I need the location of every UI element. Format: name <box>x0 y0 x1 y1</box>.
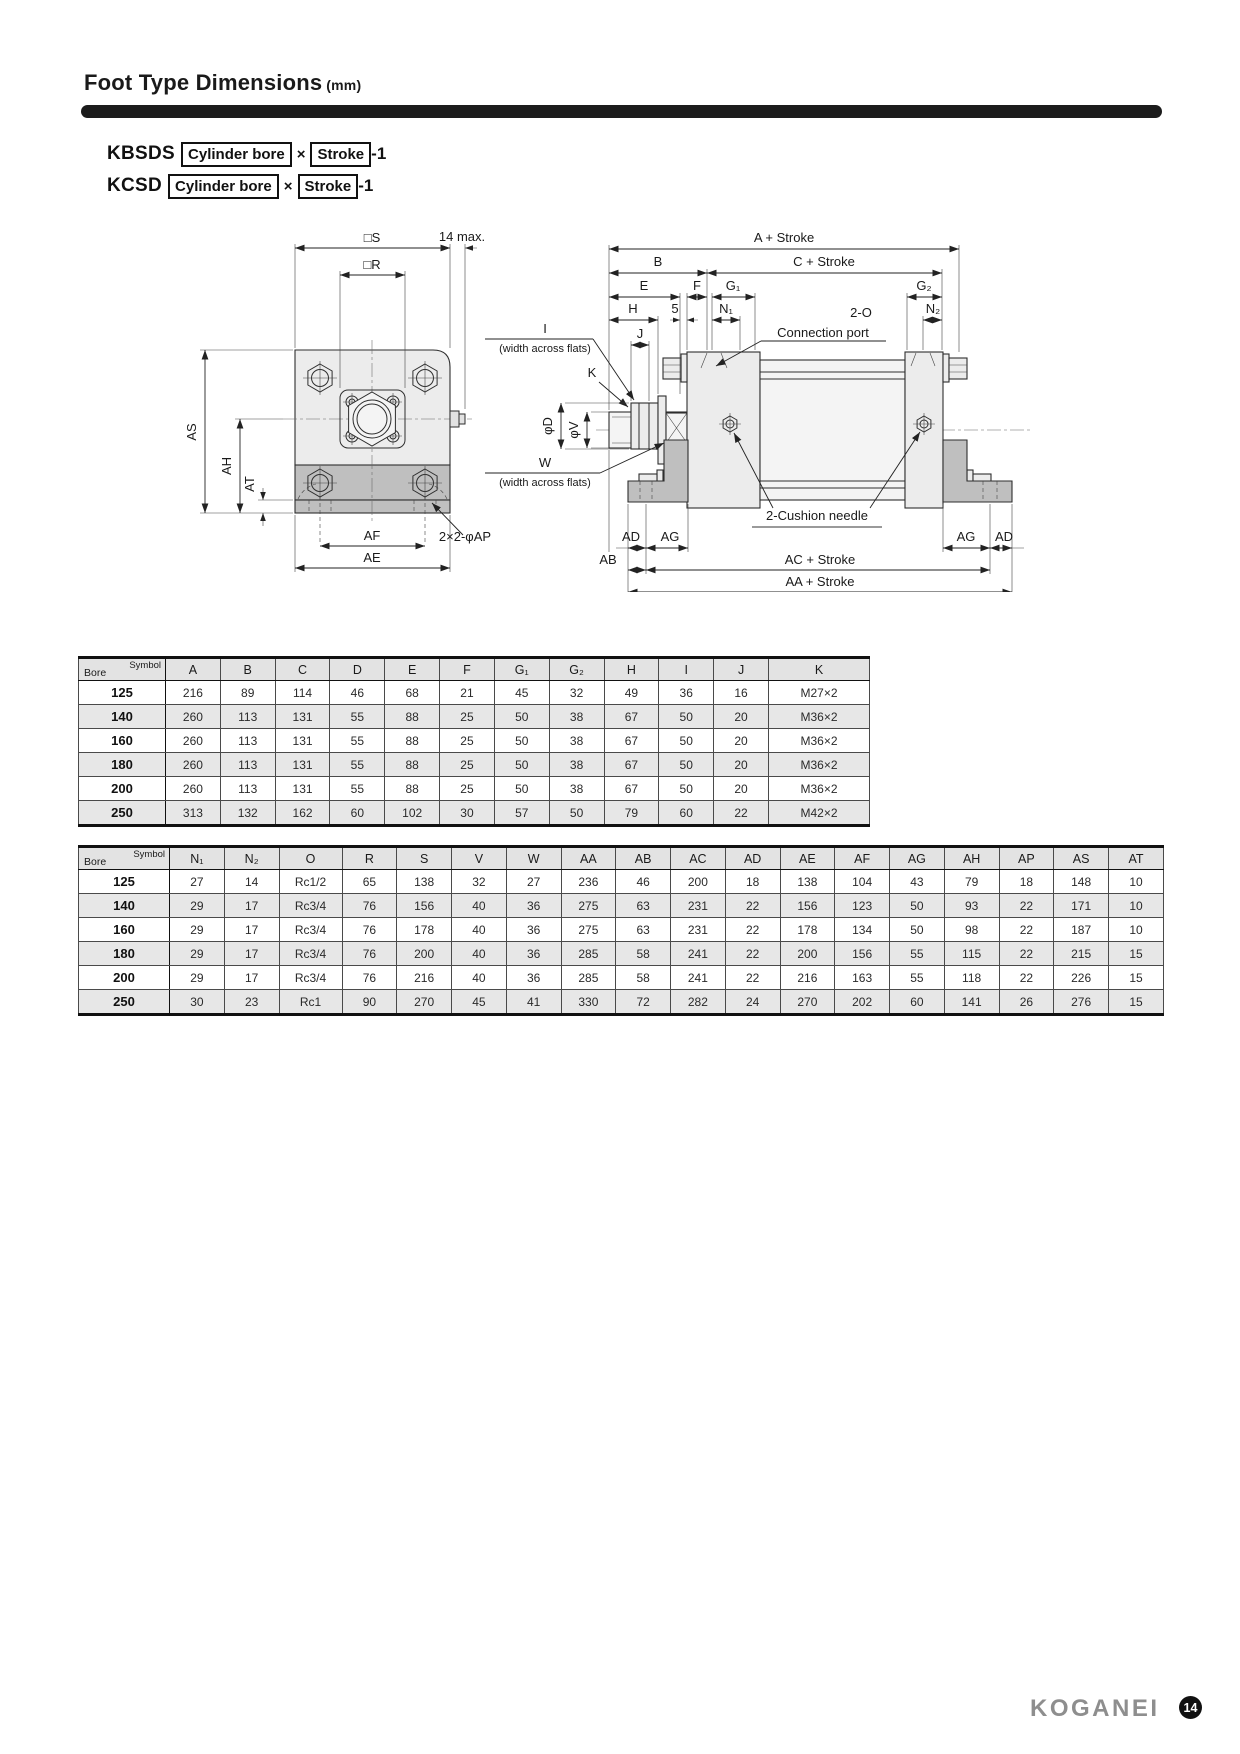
value-cell: 22 <box>999 894 1054 918</box>
side-view: A + Stroke B C + Stroke E F G₁ G₂ H 5 N₁… <box>485 230 1032 592</box>
value-cell: 89 <box>220 681 275 705</box>
column-header: G₂ <box>549 658 604 681</box>
value-cell: 10 <box>1109 894 1164 918</box>
value-cell: 79 <box>944 870 999 894</box>
value-cell: 50 <box>494 705 549 729</box>
label-connection-port: Connection port <box>777 325 869 340</box>
column-header: W <box>506 847 561 870</box>
dim-label-n1: N₁ <box>719 301 733 316</box>
value-cell: 260 <box>166 777 221 801</box>
dim-label-waf1: (width across flats) <box>499 343 591 355</box>
value-cell: 231 <box>671 894 726 918</box>
value-cell: 40 <box>452 942 507 966</box>
value-cell: 285 <box>561 942 616 966</box>
value-cell: 57 <box>494 801 549 826</box>
column-header: F <box>440 658 495 681</box>
model-code: KBSDS <box>107 143 175 165</box>
bore-cell: 160 <box>79 918 170 942</box>
bore-cell: 125 <box>79 681 166 705</box>
catalog-page: Foot Type Dimensions(mm) KBSDS Cylinder … <box>0 0 1240 1754</box>
value-cell: 132 <box>220 801 275 826</box>
column-header: AF <box>835 847 890 870</box>
value-cell: 270 <box>397 990 452 1015</box>
value-cell: 40 <box>452 918 507 942</box>
value-cell: 113 <box>220 753 275 777</box>
dim-label-ag-right: AG <box>957 529 976 544</box>
bore-cell: 250 <box>79 990 170 1015</box>
stroke-box: Stroke <box>298 174 359 199</box>
value-cell: 76 <box>342 966 397 990</box>
value-cell: 55 <box>890 942 945 966</box>
value-cell: 60 <box>659 801 714 826</box>
corner-cell: Symbol Bore <box>79 658 166 681</box>
cylinder-bore-box: Cylinder bore <box>181 142 292 167</box>
bore-cell: 180 <box>79 942 170 966</box>
model-suffix: -1 <box>358 176 373 196</box>
value-cell: 171 <box>1054 894 1109 918</box>
value-cell: 23 <box>224 990 279 1015</box>
value-cell: 113 <box>220 777 275 801</box>
value-cell: 24 <box>725 990 780 1015</box>
dim-label-g2: G₂ <box>916 278 931 293</box>
dim-label-w: W <box>539 455 552 470</box>
value-cell: 17 <box>224 918 279 942</box>
value-cell: 32 <box>452 870 507 894</box>
value-cell: 15 <box>1109 942 1164 966</box>
value-cell: 275 <box>561 894 616 918</box>
column-header: AG <box>890 847 945 870</box>
value-cell: 76 <box>342 918 397 942</box>
value-cell: 104 <box>835 870 890 894</box>
value-cell: 36 <box>506 894 561 918</box>
value-cell: 45 <box>494 681 549 705</box>
value-cell: 241 <box>671 966 726 990</box>
value-cell: 49 <box>604 681 659 705</box>
value-cell: 275 <box>561 918 616 942</box>
value-cell: 29 <box>170 894 225 918</box>
bore-cell: 160 <box>79 729 166 753</box>
table-row: 1602917Rc3/47617840362756323122178134509… <box>79 918 1164 942</box>
column-header: I <box>659 658 714 681</box>
model-number-block: KBSDS Cylinder bore × Stroke -1 KCSD Cyl… <box>107 138 386 202</box>
value-cell: 282 <box>671 990 726 1015</box>
value-cell: Rc3/4 <box>279 918 342 942</box>
value-cell: 18 <box>999 870 1054 894</box>
value-cell: 25 <box>440 753 495 777</box>
value-cell: 55 <box>330 777 385 801</box>
column-header: AH <box>944 847 999 870</box>
times-sign: × <box>284 178 293 195</box>
dim-label-phi-d: φD <box>540 417 555 435</box>
value-cell: 113 <box>220 705 275 729</box>
koganei-logo: KOGANEI <box>1030 1695 1160 1723</box>
table-row: 1402917Rc3/47615640362756323122156123509… <box>79 894 1164 918</box>
value-cell: 45 <box>452 990 507 1015</box>
dim-label-aa-stroke: AA + Stroke <box>785 574 854 589</box>
value-cell: 98 <box>944 918 999 942</box>
value-cell: 102 <box>385 801 440 826</box>
column-header: AC <box>671 847 726 870</box>
value-cell: 36 <box>659 681 714 705</box>
column-header: AD <box>725 847 780 870</box>
bore-cell: 125 <box>79 870 170 894</box>
header-row: Symbol Bore ABCDEFG₁G₂HIJK <box>79 658 870 681</box>
value-cell: 63 <box>616 894 671 918</box>
value-cell: 216 <box>397 966 452 990</box>
dim-label-as: AS <box>184 423 199 441</box>
page-title: Foot Type Dimensions(mm) <box>84 70 361 96</box>
dim-label-c-stroke: C + Stroke <box>793 254 855 269</box>
table-row: 1602601131315588255038675020M36×2 <box>79 729 870 753</box>
value-cell: 50 <box>494 777 549 801</box>
value-cell: 216 <box>166 681 221 705</box>
dim-label-ac-stroke: AC + Stroke <box>785 552 855 567</box>
value-cell: 313 <box>166 801 221 826</box>
value-cell: 30 <box>440 801 495 826</box>
value-cell: 67 <box>604 753 659 777</box>
value-cell: 21 <box>440 681 495 705</box>
column-header: C <box>275 658 330 681</box>
value-cell: 118 <box>944 966 999 990</box>
stroke-box: Stroke <box>310 142 371 167</box>
value-cell: 10 <box>1109 918 1164 942</box>
value-cell: 25 <box>440 777 495 801</box>
value-cell: 187 <box>1054 918 1109 942</box>
value-cell: 30 <box>170 990 225 1015</box>
value-cell: 156 <box>835 942 890 966</box>
corner-symbol-label: Symbol <box>129 660 161 671</box>
value-cell: 22 <box>714 801 769 826</box>
value-cell: 88 <box>385 753 440 777</box>
table-row: 1802601131315588255038675020M36×2 <box>79 753 870 777</box>
dim-label-f: F <box>693 278 701 293</box>
value-cell: 156 <box>780 894 835 918</box>
column-header: G₁ <box>494 658 549 681</box>
cylinder-bore-box: Cylinder bore <box>168 174 279 199</box>
value-cell: 20 <box>714 729 769 753</box>
dim-label-ab: AB <box>599 552 616 567</box>
value-cell: 67 <box>604 705 659 729</box>
value-cell: 330 <box>561 990 616 1015</box>
bore-cell: 180 <box>79 753 166 777</box>
dimension-table-2: Symbol Bore N₁N₂ORSVWAAABACADAEAFAGAHAPA… <box>78 845 1164 1016</box>
times-sign: × <box>297 146 306 163</box>
column-header: S <box>397 847 452 870</box>
value-cell: 285 <box>561 966 616 990</box>
value-cell: 178 <box>780 918 835 942</box>
value-cell: 88 <box>385 705 440 729</box>
column-header: AT <box>1109 847 1164 870</box>
value-cell: 60 <box>890 990 945 1015</box>
bore-cell: 200 <box>79 777 166 801</box>
dim-label-5: 5 <box>671 301 678 316</box>
value-cell: 215 <box>1054 942 1109 966</box>
front-view: □S □R 14 max. AS AH AT AF AE 2×2-φAP <box>184 229 491 572</box>
value-cell: 20 <box>714 777 769 801</box>
value-cell: M36×2 <box>769 777 870 801</box>
value-cell: 156 <box>397 894 452 918</box>
dim-label-ah: AH <box>219 457 234 475</box>
value-cell: 148 <box>1054 870 1109 894</box>
column-header: J <box>714 658 769 681</box>
column-header: D <box>330 658 385 681</box>
value-cell: 29 <box>170 966 225 990</box>
dim-label-i: I <box>543 321 547 336</box>
value-cell: 270 <box>780 990 835 1015</box>
corner-bore-label: Bore <box>84 667 106 679</box>
value-cell: 260 <box>166 705 221 729</box>
header-row: Symbol Bore N₁N₂ORSVWAAABACADAEAFAGAHAPA… <box>79 847 1164 870</box>
dim-label-ae: AE <box>363 550 381 565</box>
column-header: V <box>452 847 507 870</box>
value-cell: 141 <box>944 990 999 1015</box>
column-header: N₂ <box>224 847 279 870</box>
value-cell: 260 <box>166 753 221 777</box>
value-cell: 27 <box>506 870 561 894</box>
column-header: A <box>166 658 221 681</box>
value-cell: 131 <box>275 777 330 801</box>
value-cell: 90 <box>342 990 397 1015</box>
value-cell: 200 <box>397 942 452 966</box>
model-line-kbsds: KBSDS Cylinder bore × Stroke -1 <box>107 138 386 170</box>
table-row: 2002917Rc3/47621640362855824122216163551… <box>79 966 1164 990</box>
value-cell: 276 <box>1054 990 1109 1015</box>
value-cell: 26 <box>999 990 1054 1015</box>
value-cell: 138 <box>780 870 835 894</box>
value-cell: 50 <box>659 753 714 777</box>
value-cell: Rc3/4 <box>279 942 342 966</box>
dim-label-e: E <box>640 278 649 293</box>
dim-label-ap: 2×2-φAP <box>439 529 491 544</box>
value-cell: 27 <box>170 870 225 894</box>
column-header: AE <box>780 847 835 870</box>
value-cell: 231 <box>671 918 726 942</box>
value-cell: Rc3/4 <box>279 894 342 918</box>
value-cell: 20 <box>714 753 769 777</box>
column-header: O <box>279 847 342 870</box>
value-cell: 88 <box>385 777 440 801</box>
dim-label-square-s: □S <box>364 230 381 245</box>
value-cell: 20 <box>714 705 769 729</box>
value-cell: 25 <box>440 705 495 729</box>
value-cell: 72 <box>616 990 671 1015</box>
value-cell: 10 <box>1109 870 1164 894</box>
value-cell: 36 <box>506 942 561 966</box>
value-cell: 202 <box>835 990 890 1015</box>
value-cell: 131 <box>275 753 330 777</box>
value-cell: 46 <box>616 870 671 894</box>
value-cell: 38 <box>549 777 604 801</box>
bore-cell: 250 <box>79 801 166 826</box>
value-cell: Rc1 <box>279 990 342 1015</box>
value-cell: 216 <box>780 966 835 990</box>
value-cell: 113 <box>220 729 275 753</box>
corner-bore-label: Bore <box>84 856 106 868</box>
label-2-o: 2-O <box>850 305 872 320</box>
model-line-kcsd: KCSD Cylinder bore × Stroke -1 <box>107 170 386 202</box>
value-cell: 50 <box>890 918 945 942</box>
dim-label-g1: G₁ <box>726 278 741 293</box>
value-cell: 76 <box>342 894 397 918</box>
value-cell: 67 <box>604 729 659 753</box>
value-cell: 79 <box>604 801 659 826</box>
value-cell: Rc1/2 <box>279 870 342 894</box>
column-header: B <box>220 658 275 681</box>
value-cell: 163 <box>835 966 890 990</box>
dim-label-at: AT <box>242 476 257 492</box>
dim-label-af: AF <box>364 528 381 543</box>
value-cell: 60 <box>330 801 385 826</box>
bore-cell: 140 <box>79 705 166 729</box>
value-cell: 18 <box>725 870 780 894</box>
value-cell: 67 <box>604 777 659 801</box>
value-cell: 46 <box>330 681 385 705</box>
page-number-badge: 14 <box>1179 1696 1202 1719</box>
value-cell: 15 <box>1109 990 1164 1015</box>
model-code: KCSD <box>107 175 162 197</box>
value-cell: 50 <box>494 729 549 753</box>
value-cell: 32 <box>549 681 604 705</box>
value-cell: 134 <box>835 918 890 942</box>
value-cell: 22 <box>725 894 780 918</box>
corner-cell: Symbol Bore <box>79 847 170 870</box>
value-cell: 55 <box>890 966 945 990</box>
value-cell: 162 <box>275 801 330 826</box>
value-cell: 25 <box>440 729 495 753</box>
value-cell: 17 <box>224 966 279 990</box>
value-cell: 22 <box>725 942 780 966</box>
value-cell: 17 <box>224 894 279 918</box>
page-title-text: Foot Type Dimensions <box>84 70 322 95</box>
value-cell: 226 <box>1054 966 1109 990</box>
value-cell: 131 <box>275 729 330 753</box>
value-cell: 40 <box>452 894 507 918</box>
value-cell: M36×2 <box>769 705 870 729</box>
dim-label-ad-left: AD <box>622 529 640 544</box>
dim-label-a-stroke: A + Stroke <box>754 230 814 245</box>
table-row: 2002601131315588255038675020M36×2 <box>79 777 870 801</box>
value-cell: 68 <box>385 681 440 705</box>
value-cell: 55 <box>330 705 385 729</box>
value-cell: 22 <box>999 942 1054 966</box>
value-cell: M36×2 <box>769 729 870 753</box>
value-cell: 138 <box>397 870 452 894</box>
value-cell: 38 <box>549 753 604 777</box>
table-row: 1252714Rc1/26513832272364620018138104437… <box>79 870 1164 894</box>
dim-label-b: B <box>654 254 663 269</box>
model-suffix: -1 <box>371 144 386 164</box>
value-cell: 38 <box>549 729 604 753</box>
column-header: H <box>604 658 659 681</box>
value-cell: 22 <box>725 918 780 942</box>
column-header: E <box>385 658 440 681</box>
value-cell: 22 <box>999 966 1054 990</box>
column-header: AP <box>999 847 1054 870</box>
value-cell: 50 <box>494 753 549 777</box>
column-header: R <box>342 847 397 870</box>
column-header: N₁ <box>170 847 225 870</box>
value-cell: 50 <box>659 705 714 729</box>
value-cell: 65 <box>342 870 397 894</box>
value-cell: 17 <box>224 942 279 966</box>
dim-label-ad-right: AD <box>995 529 1013 544</box>
value-cell: 58 <box>616 966 671 990</box>
dim-label-waf2: (width across flats) <box>499 477 591 489</box>
value-cell: 260 <box>166 729 221 753</box>
value-cell: 50 <box>659 777 714 801</box>
value-cell: M27×2 <box>769 681 870 705</box>
column-header: AS <box>1054 847 1109 870</box>
corner-symbol-label: Symbol <box>133 849 165 860</box>
value-cell: 123 <box>835 894 890 918</box>
column-header: K <box>769 658 870 681</box>
value-cell: M42×2 <box>769 801 870 826</box>
dim-label-phi-v: φV <box>566 421 581 438</box>
dim-label-h: H <box>628 301 637 316</box>
value-cell: 131 <box>275 705 330 729</box>
column-header: AA <box>561 847 616 870</box>
value-cell: 114 <box>275 681 330 705</box>
table-row: 1802917Rc3/47620040362855824122200156551… <box>79 942 1164 966</box>
value-cell: 50 <box>659 729 714 753</box>
value-cell: 55 <box>330 729 385 753</box>
value-cell: 236 <box>561 870 616 894</box>
value-cell: 63 <box>616 918 671 942</box>
value-cell: 50 <box>549 801 604 826</box>
dim-label-j: J <box>637 326 644 341</box>
table-row: 25031313216260102305750796022M42×2 <box>79 801 870 826</box>
dim-label-14max: 14 max. <box>439 229 485 244</box>
title-rule-bar <box>81 105 1162 118</box>
value-cell: 115 <box>944 942 999 966</box>
value-cell: 43 <box>890 870 945 894</box>
value-cell: 178 <box>397 918 452 942</box>
value-cell: 22 <box>725 966 780 990</box>
value-cell: 55 <box>330 753 385 777</box>
dim-label-k: K <box>588 365 597 380</box>
dimension-table-1: Symbol Bore ABCDEFG₁G₂HIJK 1252168911446… <box>78 656 870 827</box>
column-header: AB <box>616 847 671 870</box>
value-cell: 50 <box>890 894 945 918</box>
value-cell: 38 <box>549 705 604 729</box>
dim-label-n2: N₂ <box>926 301 940 316</box>
value-cell: 200 <box>671 870 726 894</box>
technical-drawing: □S □R 14 max. AS AH AT AF AE 2×2-φAP <box>80 200 1162 592</box>
value-cell: 241 <box>671 942 726 966</box>
value-cell: 29 <box>170 942 225 966</box>
value-cell: 16 <box>714 681 769 705</box>
value-cell: 200 <box>780 942 835 966</box>
value-cell: Rc3/4 <box>279 966 342 990</box>
value-cell: 41 <box>506 990 561 1015</box>
bore-cell: 140 <box>79 894 170 918</box>
dim-label-square-r: □R <box>363 257 380 272</box>
dim-label-ag-left: AG <box>661 529 680 544</box>
value-cell: 22 <box>999 918 1054 942</box>
value-cell: 29 <box>170 918 225 942</box>
value-cell: 36 <box>506 918 561 942</box>
value-cell: 40 <box>452 966 507 990</box>
label-cushion-needle: 2-Cushion needle <box>766 508 868 523</box>
value-cell: 36 <box>506 966 561 990</box>
bore-cell: 200 <box>79 966 170 990</box>
value-cell: 15 <box>1109 966 1164 990</box>
page-title-unit: (mm) <box>326 77 361 93</box>
table-row: 125216891144668214532493616M27×2 <box>79 681 870 705</box>
value-cell: 93 <box>944 894 999 918</box>
value-cell: 76 <box>342 942 397 966</box>
value-cell: 14 <box>224 870 279 894</box>
